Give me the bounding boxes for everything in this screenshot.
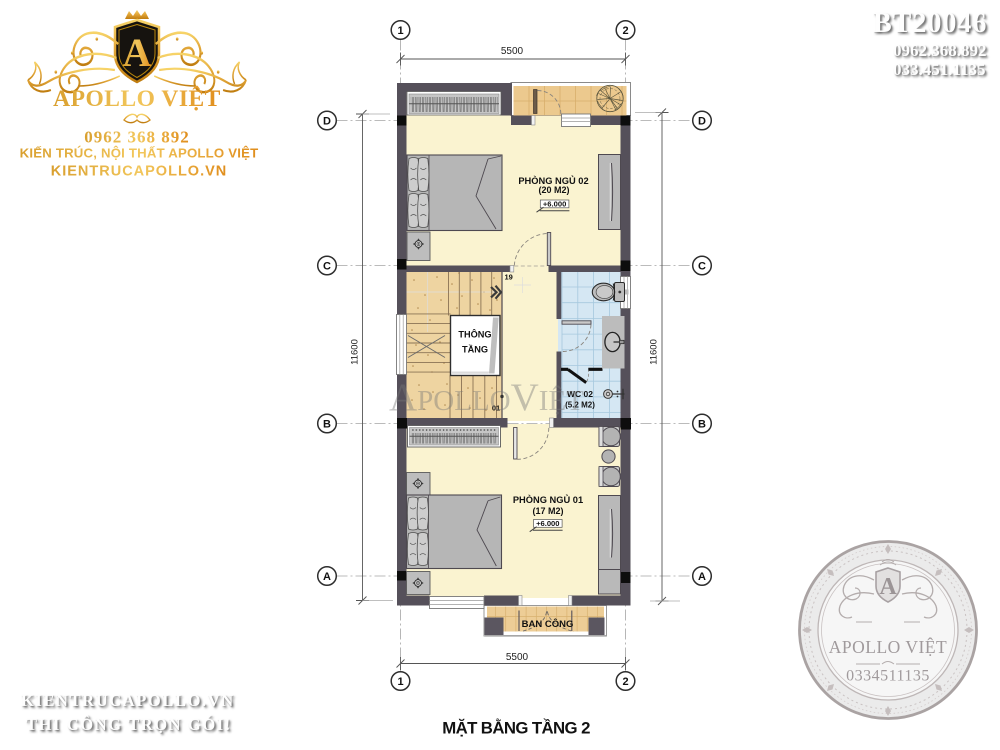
svg-text:+6.000: +6.000 [536, 519, 559, 528]
svg-text:11600: 11600 [649, 339, 660, 365]
svg-text:PHÒNG NGỦ 01: PHÒNG NGỦ 01 [513, 494, 583, 505]
svg-text:5500: 5500 [506, 652, 529, 663]
svg-text:5500: 5500 [501, 46, 524, 57]
svg-text:(17 M2): (17 M2) [532, 506, 563, 516]
svg-text:0962 368 892: 0962 368 892 [84, 128, 190, 147]
svg-text:MẶT BẰNG TẦNG 2: MẶT BẰNG TẦNG 2 [442, 719, 590, 738]
svg-text:2: 2 [622, 676, 628, 688]
svg-text:D: D [323, 116, 331, 128]
svg-text:APOLLO VIỆT: APOLLO VIỆT [829, 637, 947, 657]
svg-text:B: B [698, 419, 706, 431]
svg-text:THÔNG: THÔNG [458, 329, 491, 340]
svg-text:A: A [879, 574, 897, 600]
svg-text:A: A [698, 571, 706, 583]
svg-text:TẦNG: TẦNG [462, 345, 488, 355]
svg-text:KIẾN TRÚC, NỘI THẤT APOLLO VIỆ: KIẾN TRÚC, NỘI THẤT APOLLO VIỆT [20, 146, 259, 161]
svg-text:C: C [698, 261, 706, 273]
svg-text:A: A [123, 30, 152, 75]
svg-text:1: 1 [397, 25, 403, 37]
svg-text:0334511135: 0334511135 [846, 668, 930, 685]
svg-text:2: 2 [622, 25, 628, 37]
svg-text:KIENTRUCAPOLLO.VN: KIENTRUCAPOLLO.VN [51, 164, 228, 180]
svg-text:APOLLO VIỆT: APOLLO VIỆT [53, 86, 221, 112]
svg-text:D: D [698, 116, 706, 128]
svg-text:19: 19 [505, 273, 513, 282]
svg-text:11600: 11600 [350, 339, 361, 365]
svg-text:B: B [323, 419, 331, 431]
svg-text:1: 1 [397, 676, 403, 688]
svg-text:BAN CÔNG: BAN CÔNG [522, 618, 574, 630]
svg-text:(20 M2): (20 M2) [538, 185, 569, 195]
svg-text:C: C [323, 261, 331, 273]
svg-text:A: A [323, 571, 331, 583]
svg-text:+6.000: +6.000 [543, 200, 566, 209]
